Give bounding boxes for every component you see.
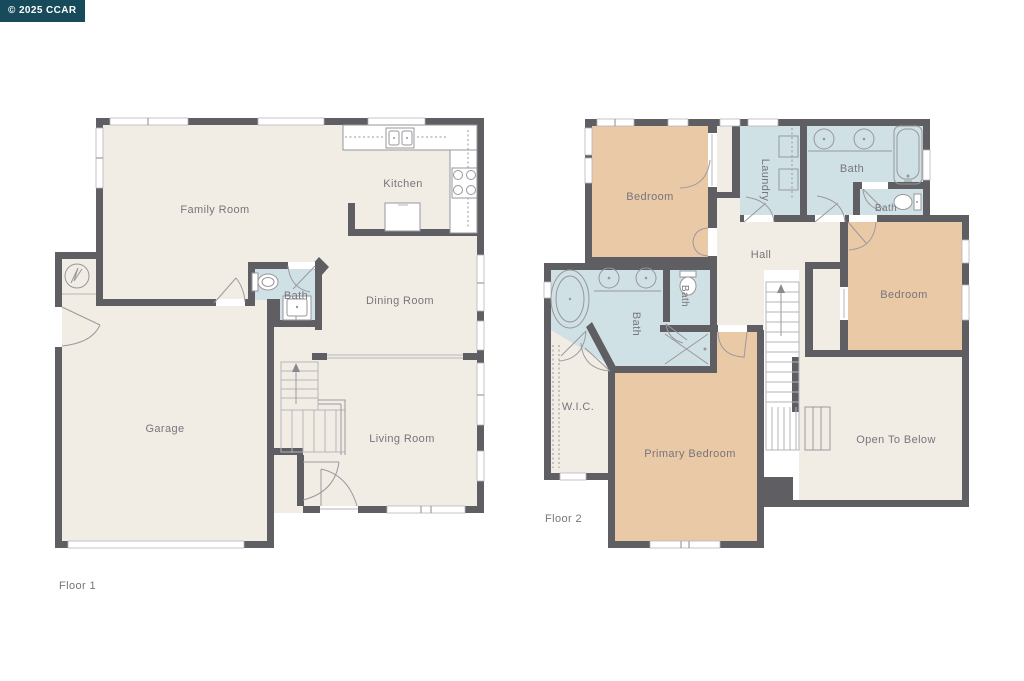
floor2-plan: Bedroom Laundry Bath Bath Hall Bedroom B… — [544, 119, 969, 548]
hall-label: Hall — [751, 249, 772, 261]
living-room-label: Living Room — [369, 433, 435, 445]
kitchen-island — [385, 203, 420, 231]
floor2-label: Floor 2 — [545, 513, 582, 525]
bath-toilet-label: Bath — [679, 285, 690, 307]
kitchen-label: Kitchen — [383, 178, 423, 190]
open-to-below-label: Open To Below — [856, 434, 936, 446]
wic-label: W.I.C. — [562, 401, 594, 413]
watermark-text: © 2025 CCAR — [8, 5, 76, 16]
copyright-watermark: © 2025 CCAR — [0, 0, 85, 22]
bedroom-right-label: Bedroom — [880, 289, 927, 301]
bath-primary-label: Bath — [630, 312, 642, 336]
bath1-label: Bath — [284, 290, 308, 302]
dining-room-label: Dining Room — [366, 295, 434, 307]
toilet-icon-small-bath — [894, 194, 921, 210]
laundry-label: Laundry — [759, 159, 771, 202]
bedroom-left-label: Bedroom — [626, 191, 673, 203]
floorplan-svg: Family Room Kitchen Dining Room Bath Gar… — [0, 0, 1024, 676]
floorplan-canvas: Family Room Kitchen Dining Room Bath Gar… — [0, 0, 1024, 676]
family-room-label: Family Room — [180, 204, 249, 216]
bath-hall-label: Bath — [840, 163, 864, 175]
floor1-label: Floor 1 — [59, 580, 96, 592]
primary-bedroom-label: Primary Bedroom — [644, 448, 736, 460]
floor1-plan: Family Room Kitchen Dining Room Bath Gar… — [55, 118, 484, 592]
bath-small-label: Bath — [875, 203, 897, 214]
garage-label: Garage — [145, 423, 184, 435]
toilet-icon — [252, 273, 278, 291]
kitchen-sink-icon — [386, 128, 414, 148]
stove-icon — [452, 168, 477, 198]
